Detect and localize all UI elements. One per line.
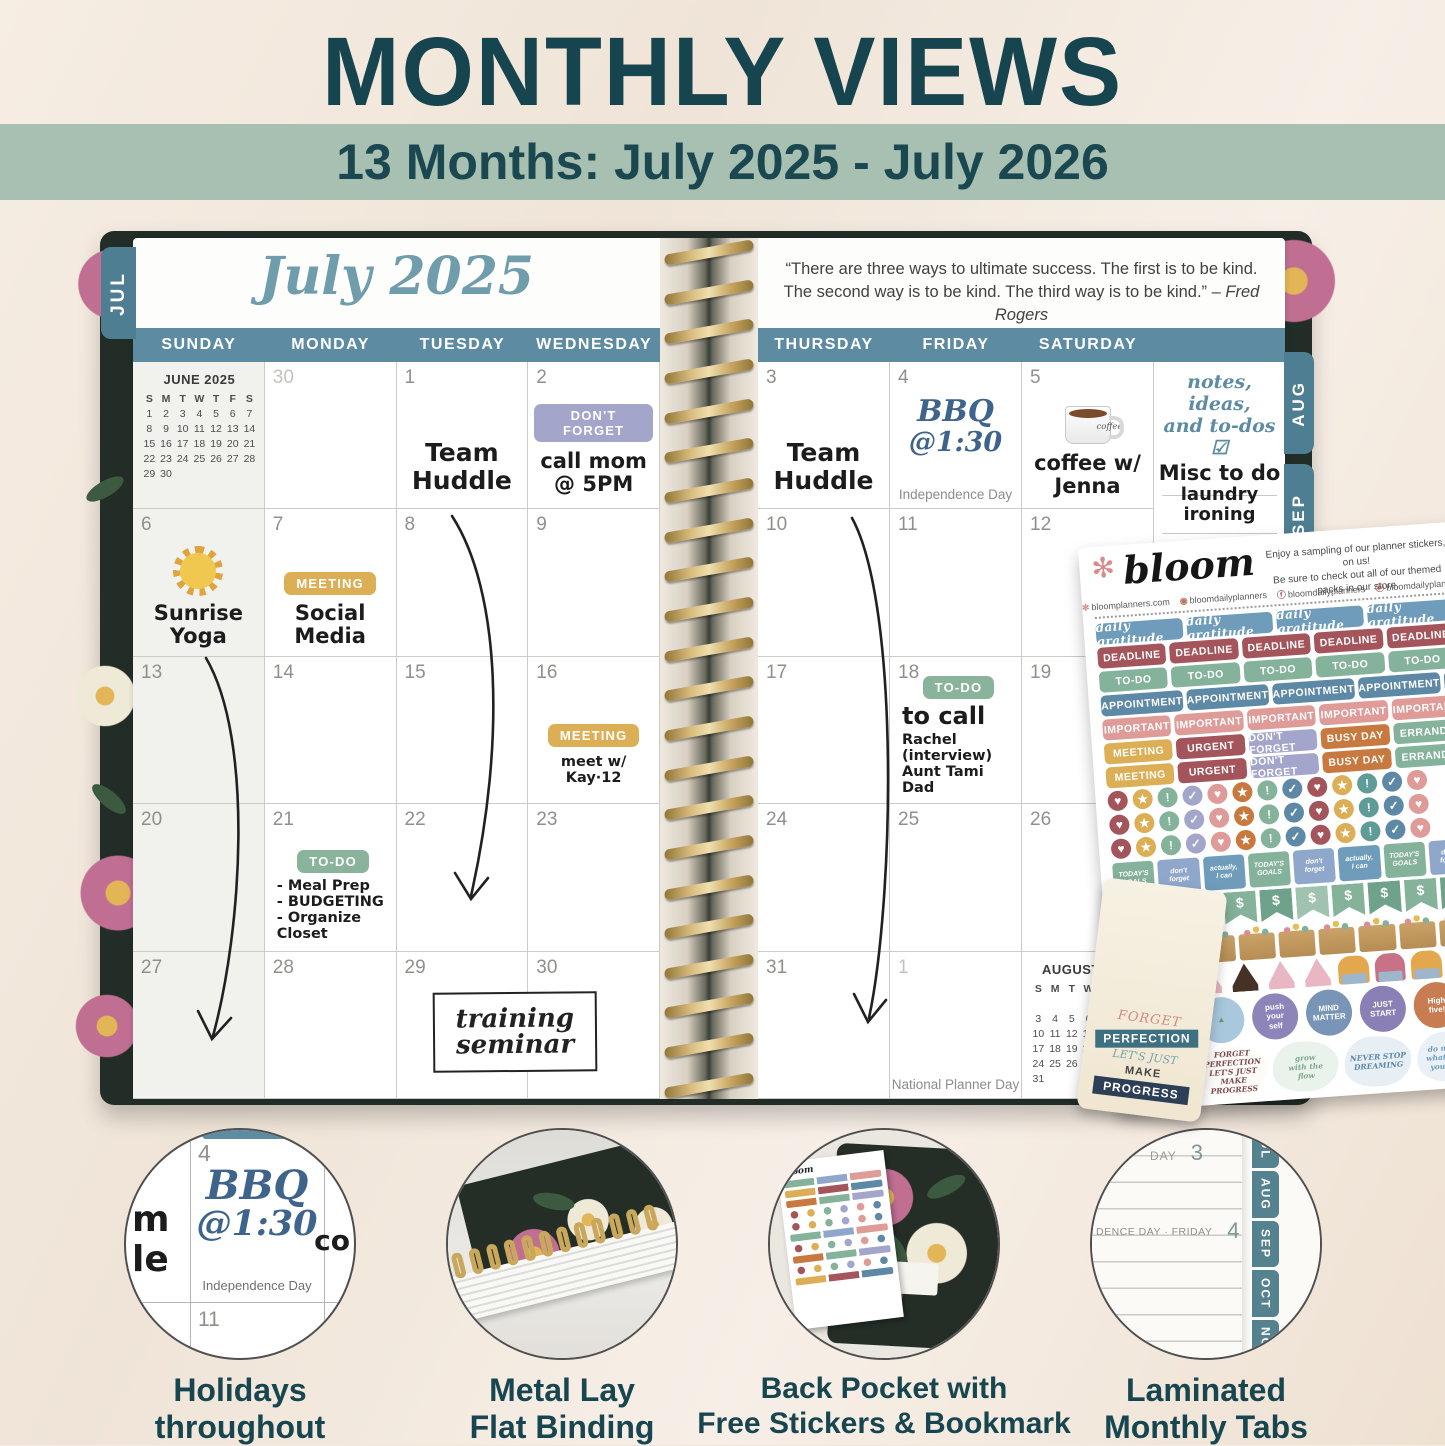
month-tab: JUL <box>1252 1128 1279 1168</box>
sticker-dot: ✓ <box>1185 833 1206 854</box>
mini-day: 2 <box>158 408 175 420</box>
sticker-label: ERRANDS <box>1393 719 1445 745</box>
laminated-tabs: JULAUGSEPOCTNOV <box>1252 1128 1279 1360</box>
holiday-label: Independence Day <box>890 487 1021 502</box>
meeting-sticker: MEETING <box>548 724 640 747</box>
mini-day: 11 <box>1047 1028 1064 1040</box>
binding-coil <box>573 1221 590 1249</box>
sticker-todo: TO-DO <box>1171 662 1241 688</box>
entry-sunrise-yoga: Sunrise Yoga <box>154 602 243 648</box>
page-edge <box>1242 1130 1252 1358</box>
calendar-cell: 25 <box>890 804 1022 951</box>
mini-days: 1234567891011121314151617181920212223242… <box>141 408 258 480</box>
mini-day: 4 <box>1047 1013 1064 1025</box>
mini-day: 26 <box>1063 1058 1080 1070</box>
spiral-spine <box>660 238 758 1099</box>
sticker-dot: ! <box>1257 780 1278 801</box>
sticker-square: actually, I can <box>1202 854 1246 891</box>
calendar-cell: 18 TO-DO to call Rachel (interview) Aunt… <box>890 657 1022 804</box>
sticker-deadline: DEADLINE <box>1386 623 1445 649</box>
sticker-dot: ✓ <box>1184 809 1205 830</box>
mini-day-letter: F <box>224 393 241 405</box>
sticker-deadline: DEADLINE <box>1314 628 1384 654</box>
sticker-round-motivational: MIND MATTER <box>1304 988 1353 1037</box>
flower-decoration <box>72 991 142 1061</box>
mini-day: 8 <box>141 423 158 435</box>
mini-day: 21 <box>241 438 258 450</box>
mini-day: 3 <box>1030 1013 1047 1025</box>
month-tab: AUG <box>1252 1171 1279 1217</box>
todo-sticker: TO-DO <box>923 676 995 699</box>
sticker-important: IMPORTANT <box>1102 715 1172 741</box>
sticker-dollar-flag: $ <box>1295 885 1329 919</box>
mini-day-letter: T <box>208 393 225 405</box>
day-header: SUNDAY <box>133 328 265 362</box>
entry-bbq: BBQ <box>917 397 994 427</box>
sticker-dot: ♥ <box>1210 831 1231 852</box>
day-number: 30 <box>273 367 294 389</box>
entry-social-media: Social Media <box>294 602 366 648</box>
right-day-header-row: THURSDAY FRIDAY SATURDAY <box>758 328 1285 362</box>
day-header: THURSDAY <box>758 328 890 362</box>
day-number: 10 <box>766 514 787 536</box>
mini-day-letter: T <box>1063 983 1080 995</box>
sticker-daily-gratitude: daily gratitude <box>1095 618 1183 645</box>
sticker-grocery-bag <box>1318 927 1356 955</box>
sticker-dot: ♥ <box>1207 783 1228 804</box>
mini-day: 18 <box>1047 1043 1064 1055</box>
day-number: 11 <box>198 1308 220 1332</box>
bookmark-line: FORGET <box>1117 1008 1182 1031</box>
calendar-cell: 22 <box>397 804 529 951</box>
quote: “There are three ways to ultimate succes… <box>768 258 1275 327</box>
mini-day: 13 <box>224 423 241 435</box>
day-header: FRIDAY <box>890 328 1022 362</box>
day-header: SATURDAY <box>1022 328 1154 362</box>
binding-coil <box>642 1204 659 1232</box>
calendar-cell: 9 <box>528 509 660 656</box>
sticker-grocery-bag <box>1278 929 1316 957</box>
bloom-logo: bloom <box>1122 544 1256 589</box>
day-number: 12 <box>330 1308 353 1332</box>
calendar-cell: 20 <box>133 804 265 951</box>
todo-sticker: TO-DO <box>297 850 369 873</box>
sticker-important: IMPORTANT <box>1246 705 1316 731</box>
sticker-dot: ✓ <box>1283 802 1304 823</box>
grid-line <box>190 1130 191 1358</box>
entry-team-huddle: Team Huddle <box>412 439 512 494</box>
sticker-label: URGENT <box>1178 758 1248 784</box>
sticker-script-quote: FORGET PERFECTION LET'S JUST MAKE PROGRE… <box>1198 1044 1268 1099</box>
month-tab-jul: JUL <box>101 247 136 339</box>
mini-day: 12 <box>208 423 225 435</box>
mini-letters: SMTWTFS <box>141 393 258 405</box>
calendar-cell: 1 Team Huddle <box>397 362 529 509</box>
feature-circle-holidays: 4 m le BBQ @1:30 Independence Day 11 12 … <box>124 1128 356 1360</box>
sticker-cupcake <box>1338 955 1370 985</box>
day-number: 24 <box>766 809 787 831</box>
sticker-square: actually, I can <box>1338 845 1382 882</box>
calendar-cell: 16 MEETING meet w/ Kay·12 <box>528 657 660 804</box>
sticker-label: URGENT <box>1176 734 1246 760</box>
day-number: 31 <box>766 957 787 979</box>
sticker-dot: ♥ <box>1310 824 1331 845</box>
day-number: 9 <box>536 514 547 536</box>
day-number: 25 <box>898 809 919 831</box>
calendar-cell: 6 Sunrise Yoga <box>133 509 265 656</box>
calendar-cell: 4 BBQ @1:30 Independence Day <box>890 362 1022 509</box>
mini-day: 19 <box>1063 1043 1080 1055</box>
mini-day-letter: S <box>141 393 158 405</box>
sticker-square: TODAY'S GOALS <box>1248 851 1292 888</box>
sticker-daily-gratitude: daily gratitude <box>1366 599 1445 626</box>
sticker-appointment: APPOINTMENT <box>1100 690 1183 717</box>
calendar-cell: 28 <box>265 952 397 1099</box>
sticker-dot: ♥ <box>1307 776 1328 797</box>
mini-day: 17 <box>1030 1043 1047 1055</box>
sticker-dot: ♥ <box>1408 793 1429 814</box>
dont-forget-sticker: DON'T FORGET <box>534 404 653 442</box>
day-number: 1 <box>898 957 909 979</box>
bookmark-line: MAKE <box>1124 1064 1162 1080</box>
mini-day <box>1030 998 1047 1010</box>
social-icon: ◉ <box>1179 595 1188 606</box>
bookmark-line: PERFECTION <box>1096 1030 1199 1048</box>
bookmark-line: PROGRESS <box>1092 1076 1189 1106</box>
mini-day-letter: S <box>1030 983 1047 995</box>
sticker-dot: ! <box>1160 835 1181 856</box>
sticker-deadline: DEADLINE <box>1097 643 1167 669</box>
day-header: WEDNESDAY <box>528 328 660 362</box>
feature-circle-binding <box>446 1128 678 1360</box>
tab-label: AUG <box>1259 1178 1273 1211</box>
binding-coil <box>625 1208 642 1236</box>
sticker-dot: ★ <box>1232 781 1253 802</box>
entry-misc-items: laundry ironing <box>1154 485 1285 525</box>
handwriting-fragment: m le <box>132 1200 170 1279</box>
sticker-label: MEETING <box>1105 763 1175 789</box>
entry-misc-title: Misc to do <box>1154 462 1285 485</box>
left-day-header-row: SUNDAYMONDAYTUESDAYWEDNESDAY <box>133 328 660 362</box>
sticker-round-motivational: JUST START <box>1358 984 1407 1033</box>
sticker-dollar-flag: $ <box>1331 883 1365 917</box>
feature-caption: Laminated Monthly Tabs <box>996 1372 1416 1446</box>
sticker-dot: ♥ <box>1208 807 1229 828</box>
entry-coffee-jenna: coffee w/ Jenna <box>1034 452 1141 498</box>
sticker-dot: ✓ <box>1385 819 1406 840</box>
sticker-important: IMPORTANT <box>1319 700 1389 726</box>
day-number: 19 <box>1030 662 1051 684</box>
notes-header: notes, ideas, and to-dos ☑ <box>1154 362 1285 459</box>
mini-day-letter: T <box>174 393 191 405</box>
sticker-dot: ♥ <box>1406 769 1427 790</box>
day-number: 20 <box>141 809 162 831</box>
social-handle: ◉bloomdailyplanners <box>1179 590 1267 607</box>
tab-label: SEP <box>1289 493 1309 536</box>
quote-line1: “There are three ways to ultimate succes… <box>768 258 1275 281</box>
binding-coil <box>538 1230 555 1258</box>
feature-circle-pocket: bloom <box>768 1128 1000 1360</box>
sticker-dot: ✓ <box>1383 795 1404 816</box>
day-number: 11 <box>898 514 918 536</box>
holiday-label: Independence Day <box>184 1278 330 1293</box>
mini-day: 6 <box>224 408 241 420</box>
subtitle: 13 Months: July 2025 - July 2026 <box>336 133 1109 191</box>
sun-sticker <box>173 546 223 596</box>
sticker-grocery-bag <box>1399 921 1437 949</box>
binding-coil <box>607 1212 624 1240</box>
sticker-dot: ✓ <box>1282 778 1303 799</box>
month-title: July 2025 <box>133 246 660 307</box>
mini-day: 31 <box>1030 1073 1047 1085</box>
binding-coil <box>520 1234 537 1262</box>
sticker-dot: ★ <box>1134 812 1155 833</box>
mini-day: 23 <box>158 453 175 465</box>
day-number: 22 <box>405 809 426 831</box>
sticker-dot: ✓ <box>1182 785 1203 806</box>
day-number: 23 <box>536 809 557 831</box>
sticker-deadline: DEADLINE <box>1169 638 1239 664</box>
mini-day: 4 <box>191 408 208 420</box>
notes-misc: Misc to do laundry ironing <box>1154 462 1285 525</box>
binding-coil <box>468 1247 485 1275</box>
calendar-cell: 14 <box>265 657 397 804</box>
entry-training-seminar: training seminar <box>456 1005 575 1058</box>
page-text-fragment: DENCE DAY · FRIDAY4 <box>1096 1226 1246 1244</box>
mini-day: 27 <box>224 453 241 465</box>
mini-day <box>1063 998 1080 1010</box>
sticker-dot: ✓ <box>1285 826 1306 847</box>
calendar-cell: 17 <box>758 657 890 804</box>
sticker-script-quote: NEVER STOP DREAMING <box>1343 1034 1413 1089</box>
calendar-cell: 27 <box>133 952 265 1099</box>
sticker-todo: TO-DO <box>1315 652 1385 678</box>
day-number: 13 <box>141 662 162 684</box>
day-number: 17 <box>766 662 787 684</box>
calendar-cell: JUNE 2025 SMTWTFS 1234567891011121314151… <box>133 362 265 509</box>
mini-day: 25 <box>1047 1058 1064 1070</box>
day-header: TUESDAY <box>397 328 529 362</box>
entry-meet-kay: meet w/ Kay·12 <box>534 755 653 787</box>
binding-coil <box>590 1217 607 1245</box>
sticker-daily-gratitude: daily gratitude <box>1186 612 1274 639</box>
binding-coil <box>503 1238 520 1266</box>
sticker-dot: ! <box>1159 811 1180 832</box>
calendar-cell: 1 National Planner Day <box>890 952 1022 1099</box>
entry-bbq-zoom: BBQ @1:30 <box>190 1166 324 1241</box>
sticker-grocery-bag <box>1358 924 1396 952</box>
day-number: 8 <box>405 514 416 536</box>
mini-day: 1 <box>141 408 158 420</box>
mini-day: 26 <box>208 453 225 465</box>
mini-day: 18 <box>191 438 208 450</box>
sticker-dot: ★ <box>1132 788 1153 809</box>
sticker-dot: ! <box>1157 787 1178 808</box>
sticker-dot: ★ <box>1233 805 1254 826</box>
mini-day: 15 <box>141 438 158 450</box>
sticker-dot: ♥ <box>1110 838 1131 859</box>
calendar-cell: 15 <box>397 657 529 804</box>
day-header: MONDAY <box>265 328 397 362</box>
mini-day-letter: M <box>158 393 175 405</box>
entry-training-seminar-box: training seminar <box>433 991 598 1072</box>
day-number: 28 <box>273 957 294 979</box>
day-header-blank <box>1154 328 1285 362</box>
leaf-decoration <box>88 779 130 818</box>
calendar-cell: 21 TO-DO - Meal Prep - BUDGETING - Organ… <box>265 804 397 951</box>
tab-label: AUG <box>1289 380 1309 427</box>
sticker-daily-gratitude: daily gratitude <box>1276 605 1364 632</box>
mini-day: 7 <box>241 408 258 420</box>
mini-day-letter: S <box>241 393 258 405</box>
sticker-script-quote: do more of what makes you happy <box>1416 1029 1445 1084</box>
sticker-dot: ♥ <box>1109 814 1130 835</box>
flower-decoration <box>70 661 140 731</box>
left-calendar-grid: JUNE 2025 SMTWTFS 1234567891011121314151… <box>133 362 660 1099</box>
handwriting-fragment: co <box>314 1226 350 1257</box>
calendar-cell: 11 <box>890 509 1022 656</box>
page-text-fragment: DAY3 <box>1150 1140 1204 1166</box>
mini-day: 11 <box>191 423 208 435</box>
social-icon: ⓟ <box>1375 583 1385 594</box>
meeting-sticker: MEETING <box>284 572 376 595</box>
day-number: 14 <box>273 662 294 684</box>
social-handle: ✻bloomplanners.com <box>1082 597 1171 614</box>
sticker-dot: ! <box>1360 821 1381 842</box>
sticker-dot: ♥ <box>1107 790 1128 811</box>
tab-label: JUL <box>1259 1131 1273 1160</box>
day-number: 26 <box>1030 809 1051 831</box>
binding-coil <box>555 1225 572 1253</box>
calendar-cell: 8 <box>397 509 529 656</box>
month-tab: AUG <box>1284 352 1314 454</box>
sticker-dot: ★ <box>1332 774 1353 795</box>
sticker-label: DON'T FORGET <box>1250 753 1320 779</box>
sticker-dot: ♥ <box>1308 800 1329 821</box>
mini-day: 3 <box>174 408 191 420</box>
sticker-round-motivational: push your self <box>1251 992 1300 1041</box>
sticker-todo: TO-DO <box>1388 647 1445 673</box>
sticker-dollar-flag: $ <box>1367 880 1401 914</box>
mini-day: 10 <box>1030 1028 1047 1040</box>
sticker-square: don't forget <box>1293 848 1337 885</box>
feature-circle-tabs: DAY3 DENCE DAY · FRIDAY4 JULAUGSEPOCTNOV <box>1090 1128 1322 1360</box>
day-number: 15 <box>405 662 426 684</box>
sticker-dot: ! <box>1260 828 1281 849</box>
entry-to-call: to call <box>902 703 985 729</box>
sticker-script-quote: grow with the flow <box>1271 1039 1341 1094</box>
mini-day: 20 <box>224 438 241 450</box>
mini-day: 10 <box>174 423 191 435</box>
calendar-cell: 7 MEETING Social Media <box>265 509 397 656</box>
mini-day <box>1047 998 1064 1010</box>
sticker-important: IMPORTANT <box>1174 710 1244 736</box>
entry-meal-prep: - Meal Prep - BUDGETING - Organize Close… <box>277 879 390 943</box>
subtitle-band: 13 Months: July 2025 - July 2026 <box>0 124 1445 200</box>
coffee-mug-sticker: coffee <box>1065 406 1111 444</box>
sticker-deadline: DEADLINE <box>1241 633 1311 659</box>
calendar-cell: 30 <box>265 362 397 509</box>
mini-day: 16 <box>158 438 175 450</box>
sticker-dot: ★ <box>1135 836 1156 857</box>
mini-day: 14 <box>241 423 258 435</box>
entry-call-mom: call mom @ 5PM <box>540 450 647 496</box>
mini-day: 25 <box>191 453 208 465</box>
social-icon: ✻ <box>1082 602 1090 613</box>
mini-day: 17 <box>174 438 191 450</box>
sticker-appointment: APPOINTMENT <box>1186 684 1269 711</box>
sticker-cake-slice <box>1265 960 1297 990</box>
mini-day: 24 <box>174 453 191 465</box>
mini-day-letter: M <box>1047 983 1064 995</box>
sticker-dollar-flag: $ <box>1440 875 1445 909</box>
sticker-important: IMPORTANT <box>1391 695 1445 721</box>
mini-day: 29 <box>141 468 158 480</box>
sticker-label: MEETING <box>1104 739 1174 765</box>
leaf-decoration <box>83 472 127 507</box>
june-mini-calendar: JUNE 2025 SMTWTFS 1234567891011121314151… <box>133 362 264 508</box>
page-title: MONTHLY VIEWS <box>29 16 1416 128</box>
day-number: 30 <box>536 957 557 979</box>
holiday-label: National Planner Day <box>890 1077 1021 1092</box>
month-tab: NOV <box>1252 1320 1279 1360</box>
sticker-label: ERRANDS <box>1394 743 1445 769</box>
grid-line <box>126 1302 354 1303</box>
sticker-appointment: APPOINTMENT <box>1358 672 1441 699</box>
quote-line2: The second way is to be kind. The third … <box>768 281 1275 327</box>
sticker-appointment: APPOINTMENT <box>1272 678 1355 705</box>
month-tab: OCT <box>1252 1270 1279 1316</box>
sticker-todo: TO-DO <box>1243 657 1313 683</box>
bookmark-line: LET'S JUST <box>1112 1047 1178 1068</box>
sticker-label: BUSY DAY <box>1322 748 1392 774</box>
calendar-cell: 13 <box>133 657 265 804</box>
day-number: 12 <box>1030 514 1051 536</box>
mini-sticker-sheet: bloom <box>776 1150 904 1330</box>
entry-to-call-list: Rachel (interview) Aunt Tami Dad <box>902 733 1015 797</box>
mini-day: 30 <box>158 468 175 480</box>
sticker-cupcake <box>1374 952 1406 982</box>
entry-team-huddle: Team Huddle <box>773 439 873 494</box>
day-number: 27 <box>141 957 162 979</box>
calendar-cell: 24 <box>758 804 890 951</box>
day-number: 29 <box>405 957 426 979</box>
mini-day: 5 <box>1063 1013 1080 1025</box>
sticker-dot: ✓ <box>1381 771 1402 792</box>
mini-day: 5 <box>208 408 225 420</box>
sticker-dot: ! <box>1358 797 1379 818</box>
mini-day: 28 <box>241 453 258 465</box>
calendar-cell: 3 Team Huddle <box>758 362 890 509</box>
tab-label: SEP <box>1259 1229 1273 1259</box>
entry-bbq-time: @1:30 <box>909 429 1002 456</box>
calendar-cell: 23 <box>528 804 660 951</box>
sticker-round-motivational: High five! <box>1412 981 1445 1030</box>
sticker-dot: ★ <box>1335 822 1356 843</box>
calendar-cell: 5 coffee coffee w/ Jenna <box>1022 362 1154 509</box>
tab-sliver <box>202 1130 292 1139</box>
mini-day-letter: W <box>191 393 208 405</box>
sticker-square: don't forget <box>1428 838 1445 875</box>
mini-day: 24 <box>1030 1058 1047 1070</box>
tab-label: OCT <box>1259 1278 1273 1309</box>
sticker-todo: TO-DO <box>1099 667 1169 693</box>
tab-label: JUL <box>108 271 130 316</box>
sticker-cupcake <box>1410 950 1442 980</box>
mini-day: 12 <box>1063 1028 1080 1040</box>
sticker-dot: ★ <box>1235 829 1256 850</box>
social-icon: ⓕ <box>1277 590 1287 601</box>
